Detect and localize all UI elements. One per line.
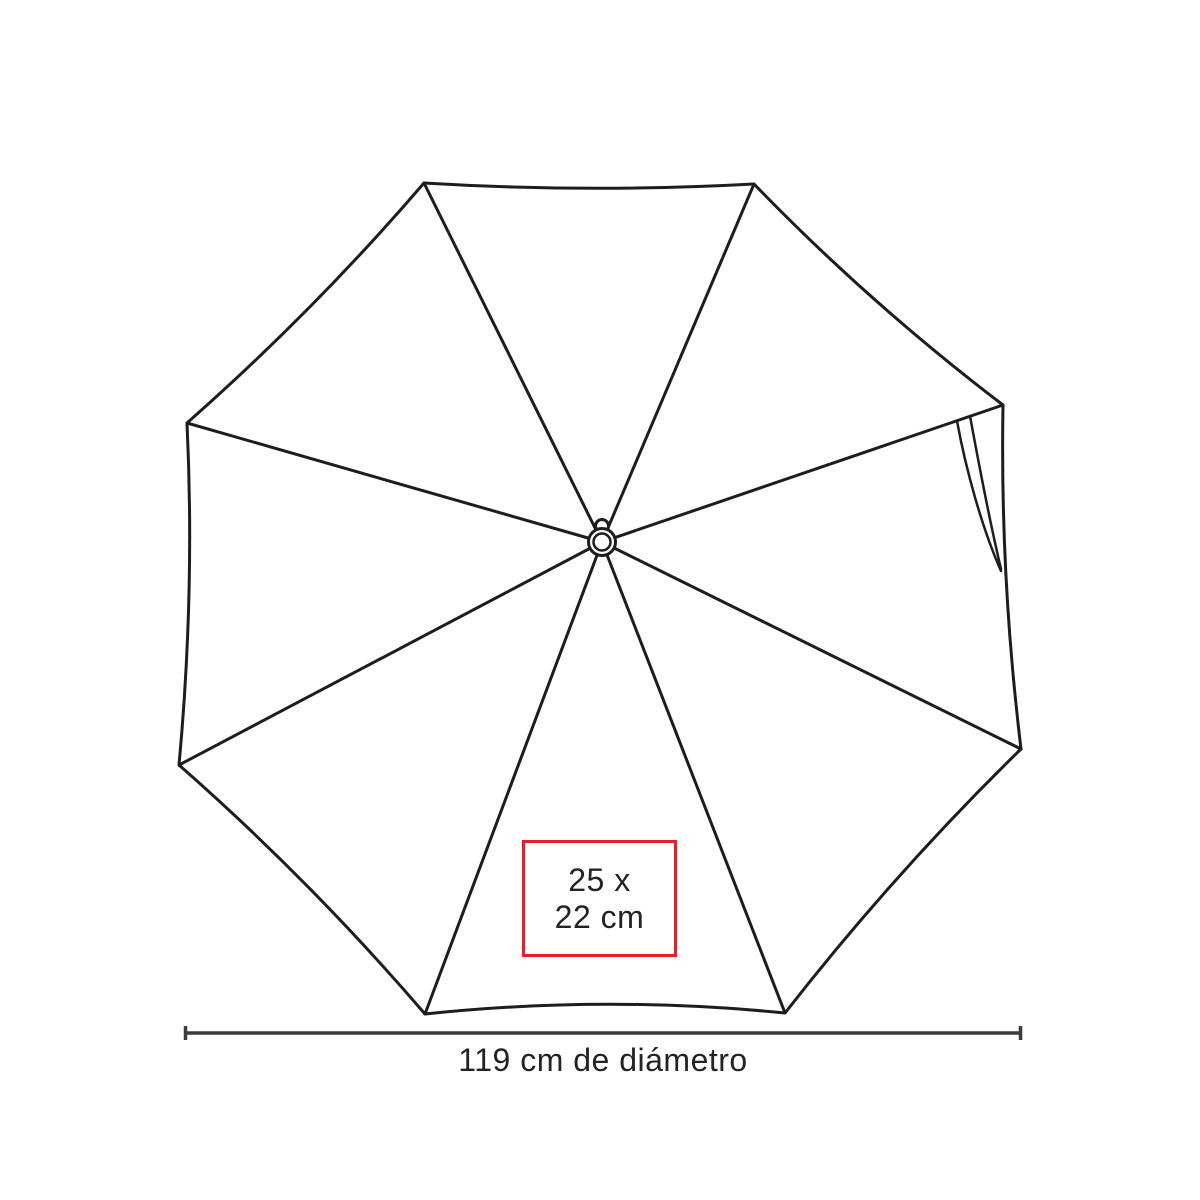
umbrella-rib	[179, 542, 602, 765]
diameter-label: 119 cm de diámetro	[184, 1042, 1022, 1079]
dimension-line-group	[184, 1026, 1022, 1040]
umbrella-rib	[602, 542, 1021, 749]
umbrella-spec-diagram: 25 x 22 cm 119 cm de diámetro	[0, 0, 1200, 1200]
umbrella-rib	[424, 183, 602, 542]
umbrella-rib	[187, 423, 602, 542]
print-area-size-line1: 25 x	[568, 862, 630, 899]
umbrella-rib	[602, 405, 1003, 542]
umbrella-line-art	[0, 0, 1200, 1200]
umbrella-rib	[602, 184, 754, 542]
print-area-box: 25 x 22 cm	[522, 840, 677, 957]
tie-strap-edge	[957, 421, 1001, 571]
print-area-size-line2: 22 cm	[555, 899, 645, 936]
tie-strap	[957, 416, 1001, 571]
